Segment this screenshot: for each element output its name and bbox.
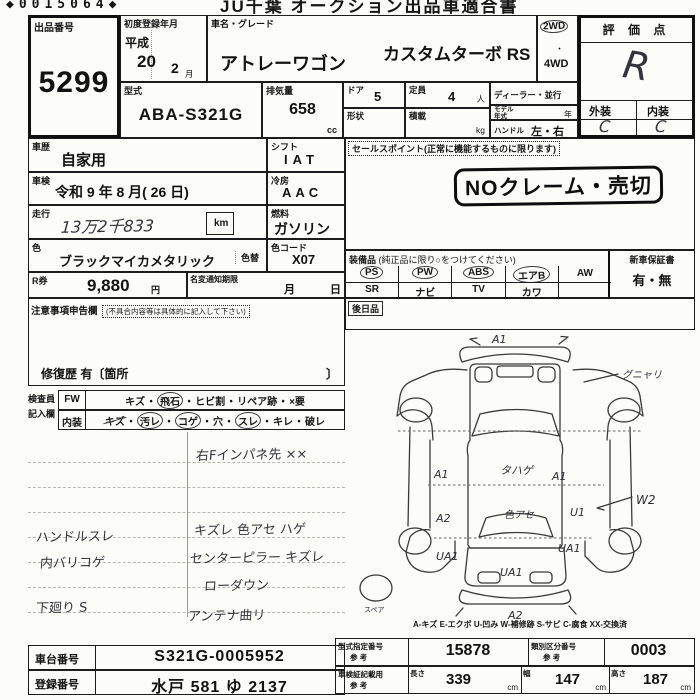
- note-right-4: アンテナ曲リ: [187, 604, 266, 624]
- steering-label: ハンドル: [494, 125, 524, 136]
- history-row: 車歴 自家用: [28, 138, 267, 172]
- fw-label: FW: [59, 391, 86, 409]
- color-row: 色 ブラックマイカメタリック 色替: [28, 239, 267, 272]
- serial-strip: ◆0015064◆: [6, 0, 176, 15]
- sales-point-label: セールスポイント(正常に機能するものに限ります): [348, 141, 560, 156]
- equipment-box: 装備品 (純正品に限り○をつけてください) PS PW ABS エアB AW S…: [345, 250, 695, 298]
- note-right-top: 右Fインパネ先 ××: [195, 443, 308, 464]
- load-label: 積載: [409, 110, 426, 122]
- name-change-cell: 名変通知期限 月 日: [187, 272, 345, 298]
- notice-header: 注意事項申告欄 (不具合内容等は具体的に記入して下さい): [31, 301, 250, 319]
- class-no-value: 0003: [603, 642, 694, 660]
- history-label: 車歴: [32, 140, 50, 153]
- lot-number: 5299: [31, 66, 117, 100]
- vehicle-label: 車名・グレード: [211, 17, 274, 30]
- r-ticket-row: R券 9,880 円: [28, 272, 187, 298]
- equip-tv: TV: [472, 284, 485, 295]
- name-change-month-unit: 月: [284, 281, 295, 297]
- repair-history-close: 〕: [326, 365, 338, 382]
- equipment-row1: PS PW ABS エアB AW: [346, 266, 611, 282]
- class-no-label: 類別区分番号: [529, 639, 604, 652]
- diagram-front-bumper-label: A1: [491, 333, 507, 346]
- first-reg-era: 平成: [125, 34, 149, 51]
- r-ticket-value: 9,880: [87, 276, 130, 296]
- registration-label: 登録番号: [35, 676, 79, 692]
- width-value: 147: [555, 671, 580, 688]
- r-ticket-label: R券: [32, 274, 48, 287]
- int-yogore: 汚レ: [137, 411, 164, 429]
- score-value: R: [578, 36, 695, 97]
- equipment-sublabel: (純正品に限り○をつけてください): [379, 255, 516, 265]
- note-right-1: キズレ 色アセ ハゲ: [193, 518, 306, 539]
- equip-ps: PS: [360, 266, 384, 280]
- chassis-row: 車台番号 S321G-0005952: [28, 645, 345, 670]
- class-no-ref: 参 考: [529, 652, 604, 663]
- note-right-3: ローダウン: [203, 574, 269, 594]
- serial-number: ◆0015064◆: [6, 0, 176, 12]
- load-unit: kg: [476, 125, 485, 135]
- notice-sublabel: (不具合内容等は具体的に記入して下さい): [102, 305, 250, 318]
- inspector-label: 検査員 記入欄: [28, 392, 58, 422]
- registration-row: 登録番号 水戸 581 ゆ 2137: [28, 670, 345, 695]
- fw-required: ×要: [289, 397, 305, 408]
- int-kizu: キズ: [105, 413, 125, 428]
- warranty-value: 有・無: [610, 266, 694, 289]
- equipment-label: 装備品: [349, 255, 376, 265]
- dims-label: 車検証記載用: [336, 667, 408, 680]
- score-box: 評 価 点 R 外装 内装 C C: [578, 15, 695, 138]
- capacity-label: 定員: [409, 84, 426, 96]
- width-cell: 幅 147 cm: [521, 667, 610, 693]
- diagram-roof-left-label: A1: [433, 468, 449, 481]
- notes-divider: [187, 432, 188, 617]
- chassis-number: S321G-0005952: [95, 648, 344, 666]
- repair-history: 修復歴 有〔箇所: [41, 365, 128, 382]
- note-left-3: 下廻り S: [35, 597, 88, 617]
- capacity-unit: 人: [476, 93, 485, 105]
- sales-point-box: セールスポイント(正常に機能するものに限ります) NOクレーム・売切: [345, 138, 695, 250]
- interior-score: C: [654, 117, 667, 136]
- height-cell: 高さ 187 cm: [609, 667, 694, 693]
- equipment-row2: SR ナビ TV カワ: [346, 282, 611, 299]
- vehicle-name-cell: 車名・グレード アトレーワゴン カスタムターボ RS: [207, 15, 537, 82]
- equip-airbag: エアB: [513, 265, 551, 283]
- steering-cell: ハンドル 左・右: [490, 120, 578, 138]
- fw-row: FW キズ・飛石・ヒビ割・リペア跡・×要: [58, 390, 345, 410]
- sheet-title: JU千葉 オークション出品車適合書: [220, 0, 640, 15]
- displacement-value: 658: [263, 101, 342, 119]
- model-year-label2: 年式: [494, 113, 507, 120]
- doors-label: ドア: [347, 84, 364, 96]
- length-unit: cm: [507, 683, 518, 692]
- dims-ref: 参 考: [336, 680, 408, 691]
- diagram-mid-left-label: A2: [435, 512, 451, 525]
- mileage-unit-box: km: [206, 212, 234, 235]
- color-code-cell: 色コード X07: [267, 239, 345, 272]
- inspector-label-2: 記入欄: [28, 407, 58, 422]
- model-year-label1: モデル: [494, 106, 514, 113]
- shaken-label: 車検: [32, 174, 50, 187]
- width-unit: cm: [595, 683, 606, 692]
- shape-cell: 形状: [343, 108, 405, 138]
- displacement-label: 排気量: [266, 84, 293, 97]
- int-koge: コゲ: [175, 411, 202, 429]
- model-year-cell: モデル 年式 年: [490, 105, 578, 120]
- equip-abs: ABS: [463, 265, 495, 279]
- int-sure: スレ: [235, 411, 262, 429]
- cooling-value: AAC: [282, 185, 322, 200]
- mileage-row: 走行 13万2千833 km: [28, 205, 267, 239]
- equip-aw: AW: [577, 268, 593, 279]
- drive-4wd: 4WD: [544, 58, 568, 70]
- first-reg-month: 2: [171, 60, 179, 76]
- int-yabure: 破レ: [305, 417, 325, 428]
- shift-cell: シフト IAT: [267, 138, 345, 172]
- diagram-mid-right-label: U1: [570, 506, 585, 519]
- cooling-cell: 冷房 AAC: [267, 172, 345, 205]
- registration-number: 水戸 581 ゆ 2137: [95, 673, 344, 697]
- model-year-unit: 年: [564, 109, 572, 120]
- first-reg-month-unit: 月: [185, 68, 194, 80]
- shape-label: 形状: [347, 110, 364, 122]
- score-subheader: 外装 内装: [581, 100, 692, 120]
- interior-row-label: 内装: [59, 411, 86, 429]
- r-ticket-unit: 円: [151, 283, 160, 296]
- model-code: ABA-S321G: [121, 105, 261, 125]
- score-divider: [636, 101, 637, 136]
- int-kire: キレ: [273, 417, 293, 428]
- equip-sr: SR: [365, 284, 379, 295]
- displacement-unit: cc: [327, 125, 337, 135]
- lot-label: 出品番号: [34, 19, 74, 34]
- mileage-value: 13万2千833: [60, 212, 155, 238]
- capacity-cell: 定員 4 人: [405, 82, 490, 108]
- color-code: X07: [292, 252, 315, 267]
- shaken-value: 令和 9 年 8 月( 26 日): [55, 182, 189, 202]
- drive-type-cell: 2WD ・ 4WD: [537, 15, 578, 82]
- drive-2wd: 2WD: [540, 20, 569, 34]
- load-cell: 積載 kg: [405, 108, 490, 138]
- interior-items: キズ・汚レ・コゲ・穴・スレ・キレ・破レ: [86, 412, 344, 429]
- warranty-cell: 新車保証書 有・無: [608, 251, 694, 297]
- title-strip: JU千葉 オークション出品車適合書: [220, 0, 640, 15]
- chassis-label: 車台番号: [35, 651, 79, 667]
- interior-row: 内装 キズ・汚レ・コゲ・穴・スレ・キレ・破レ: [58, 410, 345, 430]
- type-class-row: 型式指定番号 参 考 15878 類別区分番号 参 考 0003: [335, 638, 695, 666]
- shaken-row: 車検 令和 9 年 8 月( 26 日): [28, 172, 267, 205]
- dimensions-row: 車検証記載用 参 考 長さ 339 cm 幅 147 cm 高さ 187 cm: [335, 666, 695, 694]
- doors-value: 5: [374, 89, 381, 104]
- diagram-rear-center-label: UA1: [500, 566, 523, 579]
- inspector-label-1: 検査員: [28, 392, 58, 407]
- warranty-label: 新車保証書: [610, 251, 694, 266]
- note-left-1: ハンドルスレ: [35, 525, 114, 545]
- fuel-cell: 燃料 ガソリン: [267, 205, 345, 239]
- mileage-unit: km: [214, 218, 228, 229]
- vehicle-name: アトレーワゴン: [220, 50, 346, 76]
- equipment-header: 装備品 (純正品に限り○をつけてください): [349, 253, 516, 266]
- height-value: 187: [643, 671, 668, 688]
- displacement-cell: 排気量 658 cc: [262, 82, 343, 138]
- first-reg-year: 20: [137, 52, 156, 72]
- capacity-value: 4: [448, 89, 455, 104]
- history-value: 自家用: [61, 149, 106, 170]
- diagram-roof-right-label: A1: [551, 470, 567, 483]
- steering-value: 左・右: [531, 123, 564, 139]
- auction-sheet: ◆0015064◆ JU千葉 オークション出品車適合書 出品番号 5299 初度…: [0, 0, 700, 700]
- note-left-2: 内バリコゲ: [39, 551, 105, 571]
- equip-pw: PW: [412, 266, 439, 280]
- diagram-spare-label: スペア: [364, 606, 385, 614]
- damage-diagram: A1 グニャリ A1 タハゲ A1 A2 色アセ U1 W2 UA1 UA1 U…: [342, 330, 698, 622]
- dealer-label: ディーラー・並行: [494, 89, 561, 101]
- shift-value: IAT: [284, 152, 319, 167]
- diagram-legend: A-キズ E-エクボ U-凹み W-補修跡 S-サビ C-腐食 XX-交換済: [345, 619, 695, 630]
- width-label: 幅: [523, 668, 531, 679]
- diagram-rear-glass-note: 色アセ: [504, 509, 535, 521]
- notice-label: 注意事項申告欄: [31, 306, 98, 317]
- type-no-label: 型式指定番号: [336, 639, 408, 652]
- color-value: ブラックマイカメタリック: [59, 251, 215, 270]
- length-cell: 長さ 339 cm: [408, 667, 522, 693]
- vehicle-grade: カスタムターボ RS: [383, 40, 530, 65]
- model-label: 型式: [124, 84, 142, 97]
- later-items-label: 後日品: [348, 301, 383, 316]
- diagram-rear-right-label: UA1: [558, 542, 581, 555]
- fuel-value: ガソリン: [274, 219, 330, 239]
- model-code-cell: 型式 ABA-S321G: [120, 82, 262, 138]
- exterior-score: C: [598, 117, 611, 136]
- lot-number-box: 出品番号 5299: [28, 15, 120, 138]
- type-no-value: 15878: [408, 642, 528, 660]
- fw-repair: リペア跡: [237, 397, 277, 408]
- fw-items: キズ・飛石・ヒビ割・リペア跡・×要: [86, 392, 344, 409]
- dealer-cell: ディーラー・並行: [490, 82, 578, 105]
- color-change-label: 色替: [235, 251, 259, 264]
- fw-tobiishi: 飛石: [157, 391, 184, 409]
- name-change-label: 名変通知期限: [190, 274, 238, 285]
- length-label: 長さ: [410, 668, 425, 679]
- fw-hibiware: ヒビ割: [195, 397, 225, 408]
- doors-cell: ドア 5: [343, 82, 405, 108]
- fw-kizu: キズ: [125, 397, 145, 408]
- first-registration-cell: 初度登録年月 平成 20 2 月: [120, 15, 207, 82]
- diagram-roof-center-note: タハゲ: [500, 464, 535, 477]
- mileage-label: 走行: [32, 207, 50, 220]
- int-ana: 穴: [213, 417, 223, 428]
- diagram-pillar-note: グニャリ: [622, 369, 662, 381]
- drive-dot: ・: [555, 42, 564, 55]
- notice-box: 注意事項申告欄 (不具合内容等は具体的に記入して下さい) 修復歴 有〔箇所 〕: [28, 298, 345, 386]
- no-claim-stamp: NOクレーム・売切: [454, 166, 663, 207]
- height-label: 高さ: [611, 668, 626, 679]
- type-no-ref: 参 考: [336, 652, 408, 663]
- diagram-rear-left-label: UA1: [436, 550, 459, 563]
- name-change-day-unit: 日: [330, 281, 341, 297]
- length-value: 339: [446, 671, 471, 688]
- diagram-side-note: W2: [636, 493, 656, 507]
- note-right-2: センターピラー キズレ: [189, 546, 324, 567]
- first-reg-label: 初度登録年月: [124, 17, 178, 30]
- height-unit: cm: [680, 683, 691, 692]
- color-label: 色: [32, 241, 41, 254]
- later-items-box: 後日品: [345, 298, 695, 330]
